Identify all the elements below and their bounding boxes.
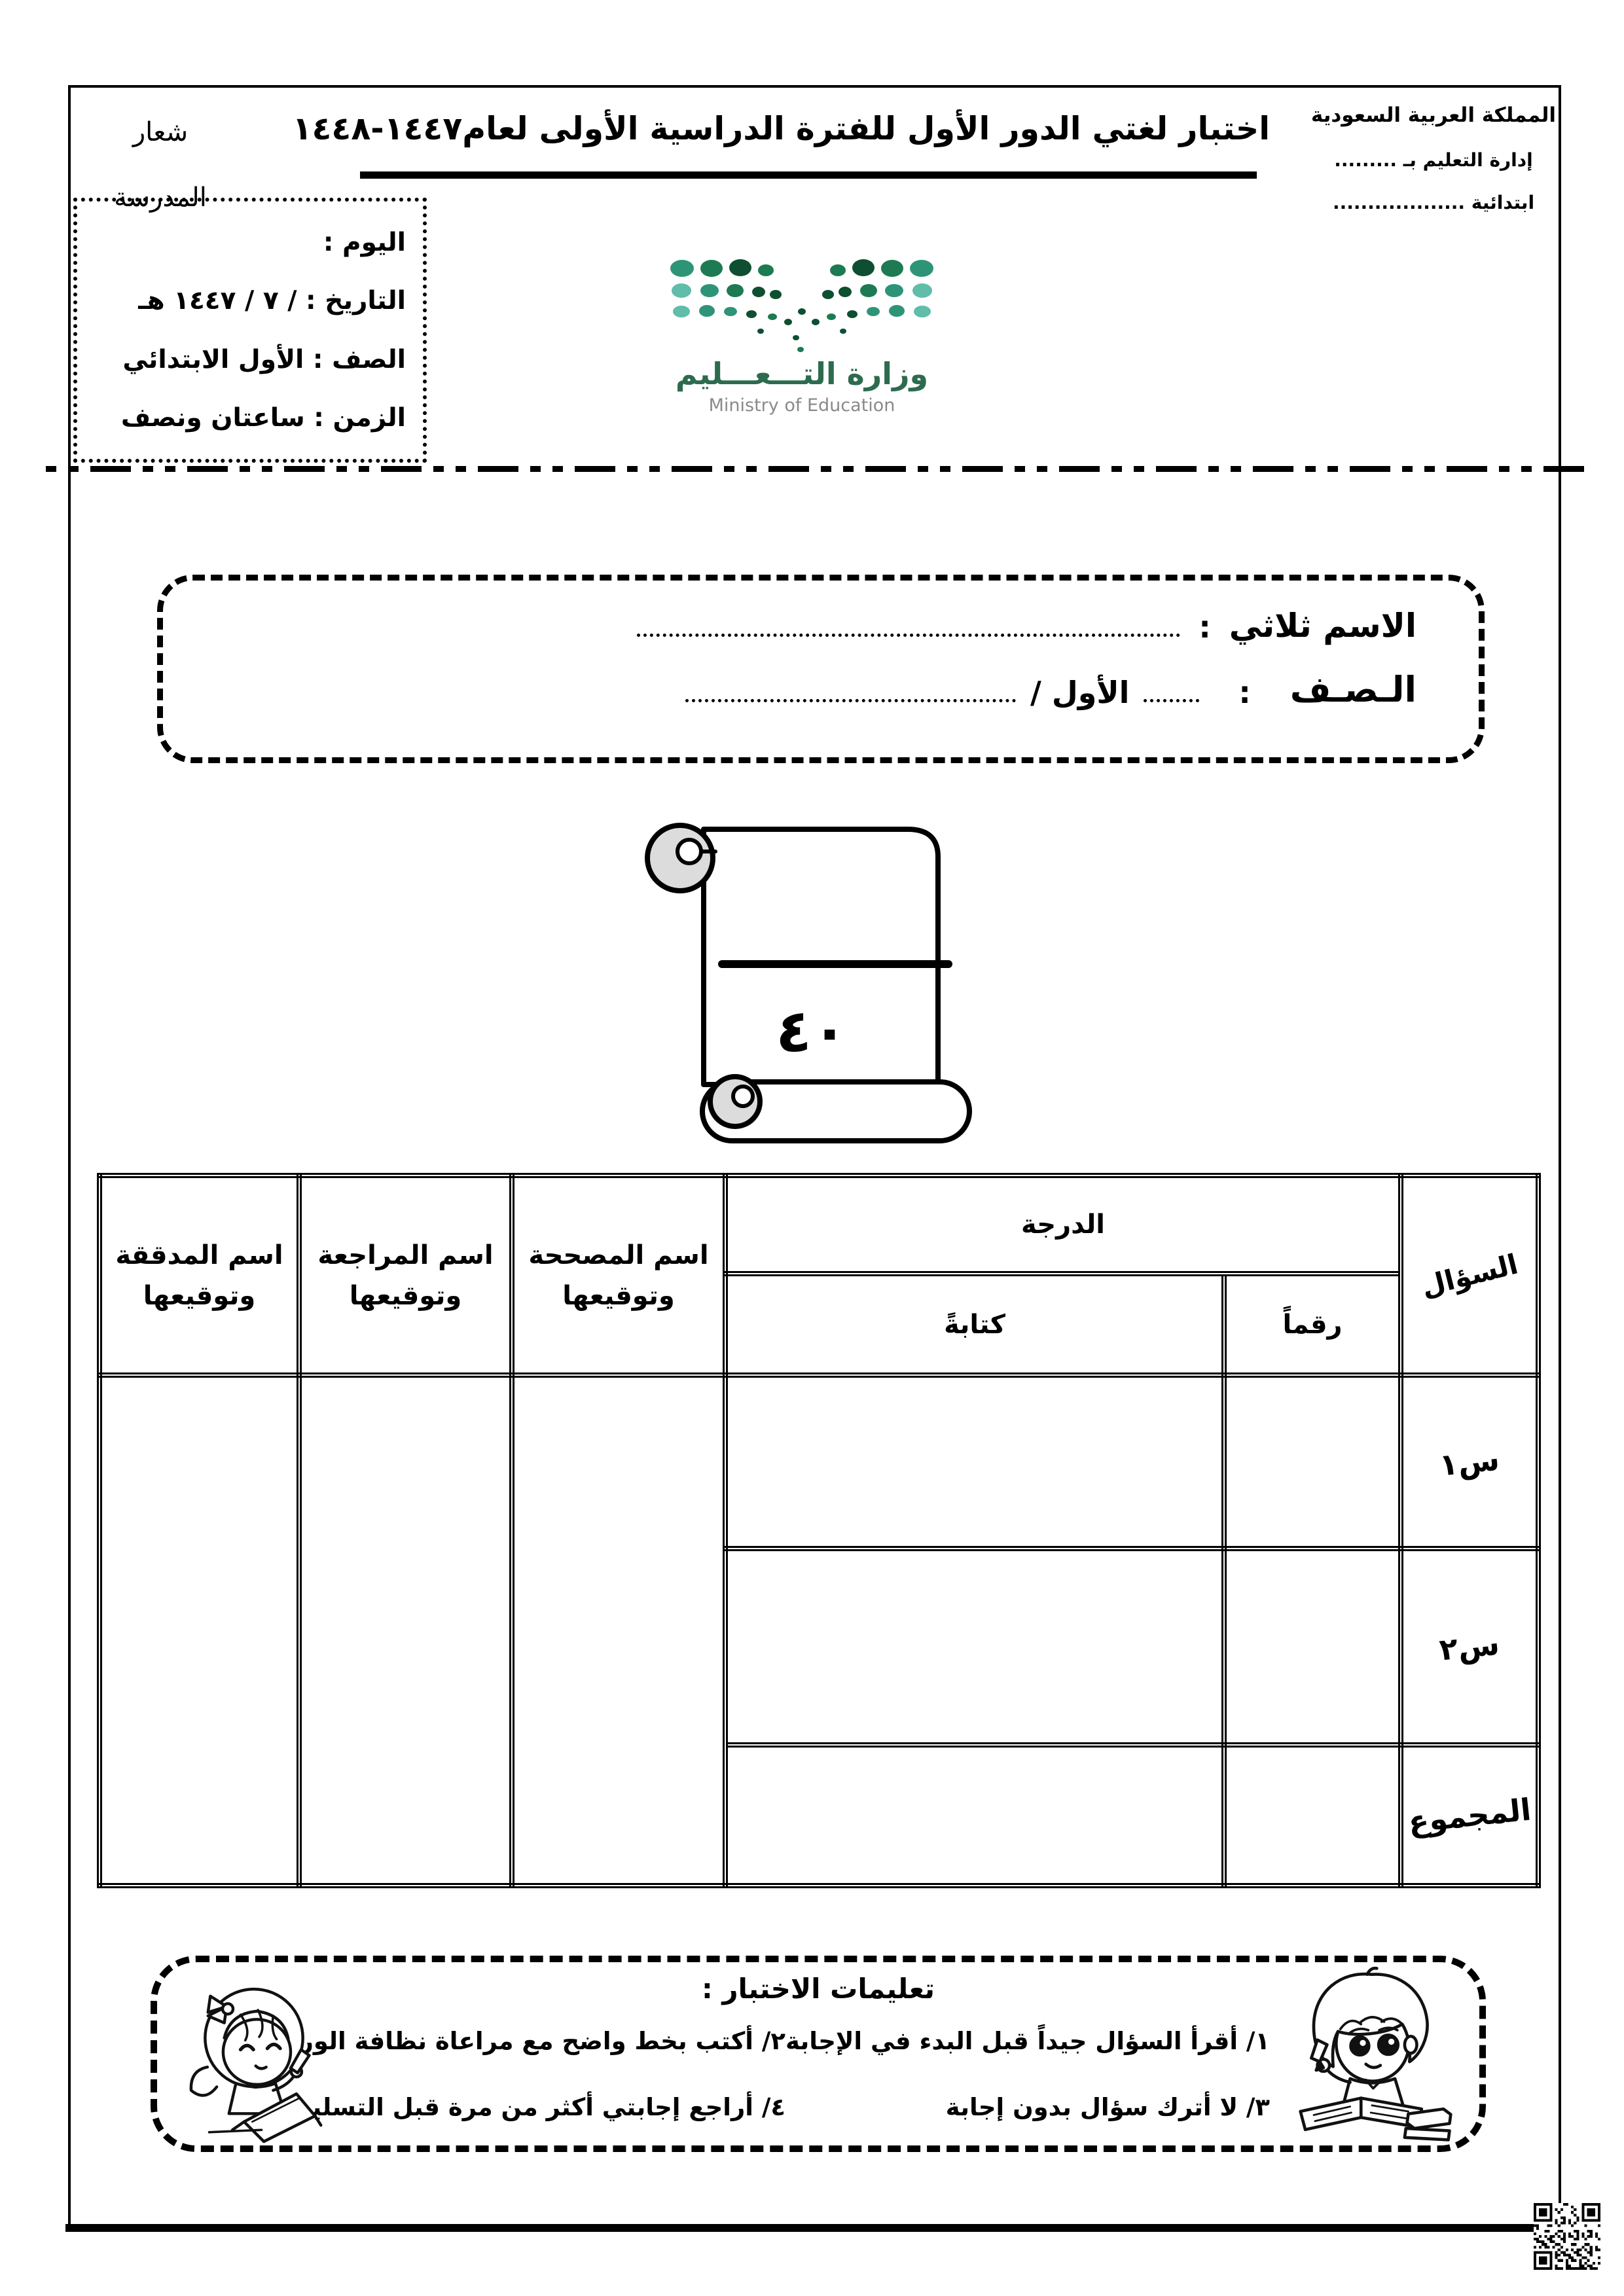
name-colon: :: [1199, 612, 1210, 642]
total-written-cell: [725, 1745, 1224, 1886]
name-fill-line: [637, 633, 1180, 637]
education-administration-line: إدارة التعليم بـ .........: [1309, 149, 1558, 171]
exam-info-box: اليوم : التاريخ : / ٧ / ١٤٤٧ هـ الصف : ا…: [73, 198, 427, 463]
reviewer-signature-cell: [299, 1375, 512, 1886]
table-row: س١: [99, 1375, 1538, 1549]
auditor-column-header: اسم المدققة وتوقيعها: [99, 1175, 299, 1375]
class-value: الأول /: [1030, 677, 1129, 708]
ministry-name-arabic: وزارة التـــعـــليم: [655, 356, 949, 391]
instruction-item-4: ٤/ أراجع إجابتي أكثر من مرة قبل التسليم: [269, 2093, 785, 2121]
footer-rule: [65, 2224, 1535, 2232]
grading-table: السؤال الدرجة اسم المصححة وتوقيعها اسم ا…: [97, 1173, 1541, 1888]
question-2-written-cell: [725, 1549, 1224, 1745]
instruction-item-1: ١/ أقرأ السؤال جيداً قبل البدء في الإجاب…: [785, 2027, 1270, 2055]
total-numeric-cell: [1224, 1745, 1401, 1886]
corrector-signature-cell: [512, 1375, 725, 1886]
exam-date: التاريخ : / ٧ / ١٤٤٧ هـ: [94, 286, 406, 315]
student-name-box: الاسم ثلاثي : الـصـف : الأول /: [157, 575, 1485, 763]
exam-duration: الزمن : ساعتان ونصف: [94, 403, 406, 433]
class-fill-line-long: [685, 698, 1016, 702]
exam-title: اختبار لغتي الدور الأول للفترة الدراسية …: [314, 110, 1270, 147]
class-row: الـصـف : الأول /: [225, 672, 1416, 708]
name-row: الاسم ثلاثي :: [225, 609, 1416, 642]
auditor-signature-cell: [99, 1375, 299, 1886]
total-row-label: المجموع: [1401, 1745, 1538, 1886]
scroll-icon: [638, 789, 985, 1155]
class-label: الـصـف: [1290, 672, 1416, 708]
boy-student-illustration-icon: [1290, 1962, 1453, 2145]
grade-column-header: الدرجة: [725, 1175, 1401, 1274]
title-underline: [360, 171, 1257, 179]
question-2-numeric-cell: [1224, 1549, 1401, 1745]
exam-title-wrap: اختبار لغتي الدور الأول للفترة الدراسية …: [314, 110, 1270, 147]
ministry-name-english: Ministry of Education: [655, 395, 949, 416]
reviewer-column-header: اسم المراجعة وتوقيعها: [299, 1175, 512, 1375]
instruction-item-3: ٣/ لا أترك سؤال بدون إجابة: [785, 2093, 1270, 2121]
instructions-column-left: ٢/ أكتب بخط واضح مع مراعاة نظافة الورقة …: [269, 2027, 785, 2121]
instructions-column-right: ١/ أقرأ السؤال جيداً قبل البدء في الإجاب…: [785, 2027, 1270, 2121]
question-1-written-cell: [725, 1375, 1224, 1549]
country-name: المملكة العربية السعودية: [1309, 103, 1558, 127]
qr-code: [1534, 2203, 1600, 2270]
ministry-logo: وزارة التـــعـــليم Ministry of Educatio…: [655, 254, 949, 416]
written-grade-header: كتابةً: [725, 1274, 1224, 1375]
ministry-logo-dots-icon: [661, 254, 943, 352]
instructions-columns: ١/ أقرأ السؤال جيداً قبل البدء في الإجاب…: [157, 2005, 1479, 2121]
dash-dot-divider: [39, 466, 1584, 472]
instruction-item-2: ٢/ أكتب بخط واضح مع مراعاة نظافة الورقة: [269, 2027, 785, 2055]
exam-grade-class: الصف : الأول الابتدائي: [94, 345, 406, 374]
question-1-numeric-cell: [1224, 1375, 1401, 1549]
grade-scroll-illustration: ٤٠: [638, 789, 985, 1155]
exam-cover-page: المملكة العربية السعودية إدارة التعليم ب…: [0, 0, 1624, 2296]
school-logo-line1: شعار: [92, 99, 229, 165]
exam-instructions-box: تعليمات الاختبار : ١/ أقرأ السؤال جيداً …: [151, 1956, 1486, 2152]
instructions-title: تعليمات الاختبار :: [157, 1973, 1479, 2005]
exam-day: اليوم :: [94, 228, 406, 257]
total-grade-value: ٤٠: [638, 997, 985, 1066]
corrector-column-header: اسم المصححة وتوقيعها: [512, 1175, 725, 1375]
question-column-header: السؤال: [1401, 1175, 1538, 1375]
girl-student-illustration-icon: [175, 1974, 333, 2152]
numeric-grade-header: رقماً: [1224, 1274, 1401, 1375]
question-2-label: س٢: [1401, 1549, 1538, 1745]
class-colon: :: [1238, 677, 1250, 708]
official-header-block: المملكة العربية السعودية إدارة التعليم ب…: [1309, 103, 1558, 213]
question-1-label: س١: [1401, 1375, 1538, 1549]
name-label: الاسم ثلاثي: [1229, 609, 1416, 642]
school-type-line: ابتدائية ...................: [1309, 192, 1558, 213]
class-fill-line-short: [1144, 698, 1199, 702]
